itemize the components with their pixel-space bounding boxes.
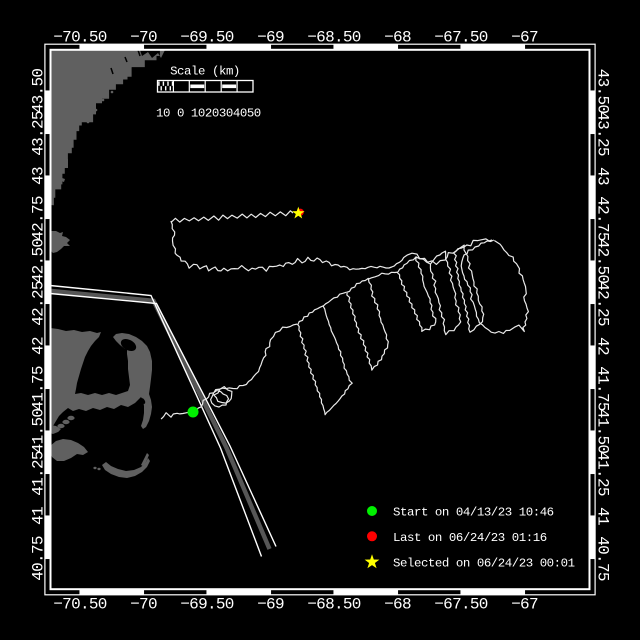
svg-text:41.50: 41.50 [594, 409, 612, 454]
svg-text:−67.50: −67.50 [434, 595, 488, 613]
svg-text:42.75: 42.75 [30, 196, 48, 241]
svg-text:Selected on 06/24/23 00:01: Selected on 06/24/23 00:01 [393, 556, 575, 570]
svg-text:−69: −69 [257, 595, 284, 613]
svg-text:42.75: 42.75 [594, 196, 612, 241]
svg-text:42.50: 42.50 [30, 239, 48, 284]
svg-text:41.75: 41.75 [594, 366, 612, 411]
svg-text:41: 41 [594, 507, 612, 525]
svg-text:42.50: 42.50 [594, 239, 612, 284]
svg-text:−69: −69 [257, 28, 284, 46]
svg-text:43: 43 [594, 167, 612, 185]
svg-text:41: 41 [30, 507, 48, 525]
svg-text:Last on 06/24/23 01:16: Last on 06/24/23 01:16 [393, 531, 547, 545]
svg-text:−67: −67 [511, 595, 538, 613]
svg-text:43.50: 43.50 [594, 69, 612, 114]
svg-text:−69.50: −69.50 [180, 595, 234, 613]
svg-text:10 0 1020304050: 10 0 1020304050 [156, 107, 261, 121]
svg-text:41.25: 41.25 [30, 451, 48, 496]
svg-text:43.50: 43.50 [30, 69, 48, 114]
svg-text:−69.50: −69.50 [180, 28, 234, 46]
svg-text:−70: −70 [130, 595, 157, 613]
svg-text:43.25: 43.25 [30, 111, 48, 156]
svg-text:43: 43 [30, 167, 48, 185]
svg-text:43.25: 43.25 [594, 111, 612, 156]
svg-text:41.75: 41.75 [30, 366, 48, 411]
svg-text:42.25: 42.25 [30, 281, 48, 326]
svg-text:−68.50: −68.50 [307, 28, 361, 46]
svg-text:40.75: 40.75 [30, 536, 48, 581]
svg-text:−68.50: −68.50 [307, 595, 361, 613]
svg-text:41.25: 41.25 [594, 451, 612, 496]
svg-text:−70: −70 [130, 28, 157, 46]
svg-text:−68: −68 [384, 28, 411, 46]
svg-text:−67.50: −67.50 [434, 28, 488, 46]
svg-text:Scale (km): Scale (km) [170, 65, 240, 79]
svg-text:Start on 04/13/23 10:46: Start on 04/13/23 10:46 [393, 506, 554, 520]
svg-text:40.75: 40.75 [594, 536, 612, 581]
svg-text:42.25: 42.25 [594, 281, 612, 326]
svg-text:42: 42 [594, 337, 612, 355]
svg-text:−70.50: −70.50 [53, 28, 107, 46]
svg-text:41.50: 41.50 [30, 409, 48, 454]
svg-text:−67: −67 [511, 28, 538, 46]
svg-text:−68: −68 [384, 595, 411, 613]
svg-text:42: 42 [30, 337, 48, 355]
svg-text:−70.50: −70.50 [53, 595, 107, 613]
